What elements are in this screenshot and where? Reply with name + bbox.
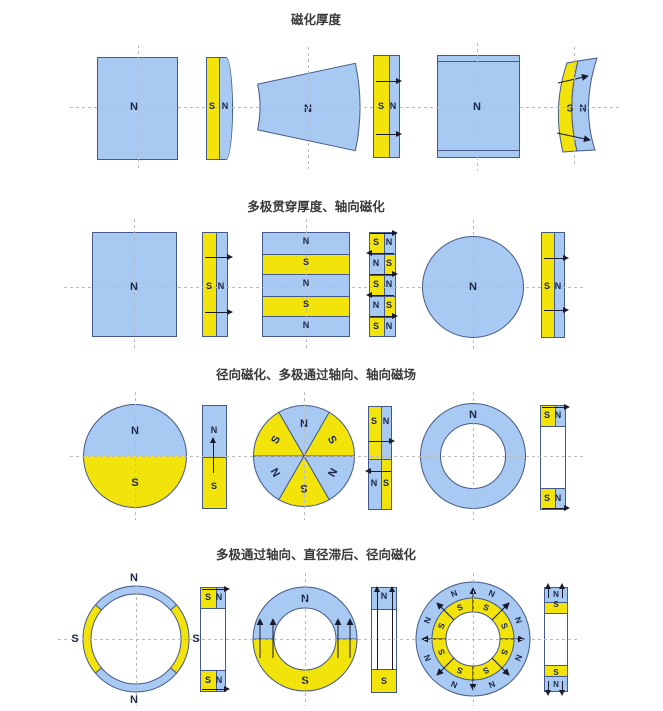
right-arrow [202, 689, 224, 690]
pole-label-n: N [551, 590, 561, 599]
chamfer-line [438, 150, 519, 151]
pole-label-n: N [384, 321, 394, 332]
pole-label-n: N [384, 279, 394, 290]
axis-vertical [136, 573, 137, 706]
pole-label-s: S [542, 281, 552, 292]
left-arrow [371, 471, 391, 472]
right-arrow [370, 274, 392, 275]
pole-label-s: S [371, 237, 381, 248]
pole-label-n: N [214, 675, 224, 686]
right-arrow [376, 81, 396, 82]
up-arrow [548, 589, 549, 598]
axis-vertical [135, 392, 136, 520]
left-arrow [372, 295, 394, 296]
axis-vertical [574, 47, 575, 167]
axis-horizontal [70, 107, 622, 108]
up-arrow [562, 589, 563, 598]
pole-label-n: N [468, 409, 478, 421]
pole-label-s: S [203, 592, 213, 603]
pole-label-n: N [130, 425, 140, 437]
pole-label-s: S [204, 281, 214, 292]
right-arrow [544, 310, 563, 311]
right-arrow [369, 441, 389, 442]
up-arrow [213, 443, 214, 473]
pole-label-n: N [129, 281, 139, 293]
pole-label-s: S [376, 101, 386, 112]
pole-label-s: S [191, 633, 201, 645]
chamfer-line [438, 61, 519, 62]
pole-label-n: N [553, 281, 563, 292]
section-title-2: 多极贯穿厚度、轴向磁化 [10, 196, 622, 215]
pole-label-n: N [301, 236, 311, 247]
magnetization-diagram: 磁化厚度 多极贯穿厚度、轴向磁化 径向磁化、多极通过轴向、轴向磁场 多极通过轴向… [0, 0, 663, 711]
pole-label-s: S [301, 257, 311, 268]
right-arrow [205, 257, 227, 258]
pole-label-n: N [129, 101, 139, 113]
down-arrow [548, 681, 549, 690]
pole-label-n: N [129, 694, 139, 706]
axis-vertical [473, 573, 474, 706]
south-region [369, 407, 381, 459]
pole-label-s: S [542, 493, 552, 504]
right-arrow [376, 134, 396, 135]
pole-label-s: S [551, 668, 561, 677]
pole-label-n: N [369, 478, 379, 489]
pole-label-n: N [301, 278, 311, 289]
pole-label-n: N [371, 300, 381, 311]
pole-label-n: N [472, 101, 482, 113]
pole-label-s: S [301, 299, 311, 310]
pole-label-n: N [129, 572, 139, 584]
pole-label-s: S [381, 478, 391, 489]
pole-label-s: S [371, 321, 381, 332]
axis-horizontal [70, 456, 586, 457]
up-arrow [392, 592, 393, 670]
section-title-4: 多极通过轴向、直径滞后、径向磁化 [10, 544, 622, 563]
pole-label-n: N [553, 493, 563, 504]
right-arrow [542, 407, 564, 408]
right-arrow [202, 589, 224, 590]
right-arrow [205, 312, 227, 313]
up-arrow [377, 592, 378, 670]
north-region [381, 407, 391, 459]
pole-label-n: N [551, 680, 561, 689]
pole-label-n: N [579, 104, 586, 115]
axis-vertical [308, 47, 309, 169]
pole-label-s: S [384, 258, 394, 269]
pole-label-n: N [379, 591, 389, 602]
pole-label-n: N [216, 281, 226, 292]
pole-label-n: N [209, 425, 219, 436]
pole-label-s: S [130, 477, 140, 489]
pole-label-n: N [468, 281, 478, 293]
pole-label-s: S [567, 104, 574, 115]
pole-label-s: S [369, 416, 379, 427]
pole-label-n: N [220, 101, 230, 112]
down-arrow [562, 681, 563, 690]
pole-label-s: S [207, 101, 217, 112]
section-title-3: 径向磁化、多极通过轴向、轴向磁场 [10, 364, 622, 383]
pole-label-s: S [384, 300, 394, 311]
pole-label-n: N [553, 410, 563, 421]
pole-label-s: S [551, 600, 561, 609]
section-title-1: 磁化厚度 [10, 9, 622, 28]
pole-label-s: S [379, 676, 389, 687]
right-arrow [542, 508, 564, 509]
axis-vertical [304, 392, 305, 520]
pole-label-n: N [214, 592, 224, 603]
diametric-side-bar [202, 405, 227, 509]
right-arrow [544, 258, 563, 259]
pole-label-s: S [70, 633, 80, 645]
right-arrow [370, 316, 392, 317]
axis-horizontal [64, 287, 586, 288]
pole-label-n: N [301, 320, 311, 331]
pole-label-s: S [209, 481, 219, 492]
pole-label-n: N [381, 416, 391, 427]
right-arrow [370, 233, 392, 234]
axis-vertical [305, 573, 306, 706]
bar-gap [541, 427, 565, 488]
left-arrow [372, 253, 394, 254]
pole-label-s: S [203, 675, 213, 686]
pole-label-s: S [371, 279, 381, 290]
pole-label-n: N [371, 258, 381, 269]
pole-label-n: N [388, 101, 398, 112]
pole-label-s: S [542, 410, 552, 421]
pole-label-n: N [384, 237, 394, 248]
